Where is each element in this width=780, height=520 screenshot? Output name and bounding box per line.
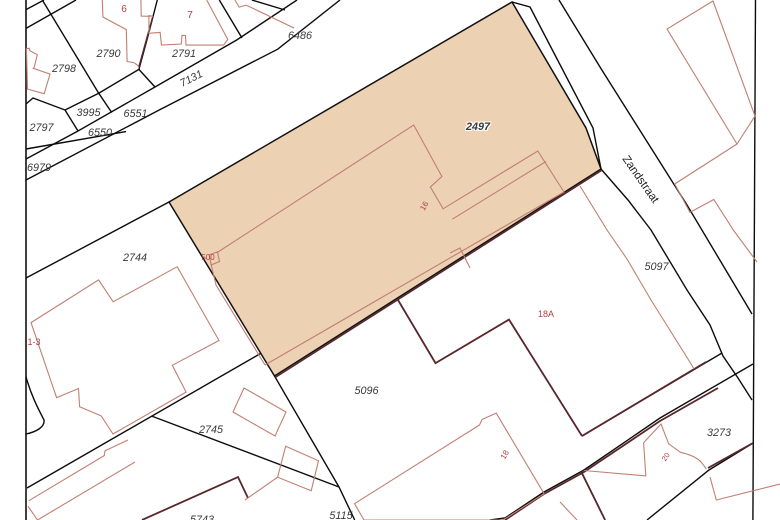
svg-text:3995: 3995 — [76, 107, 101, 119]
svg-text:3273: 3273 — [707, 427, 731, 439]
svg-text:5115: 5115 — [329, 510, 353, 520]
svg-text:1-3: 1-3 — [27, 337, 40, 347]
svg-text:18A: 18A — [538, 309, 554, 319]
svg-text:2798: 2798 — [51, 63, 76, 75]
svg-text:2497: 2497 — [465, 121, 491, 133]
svg-text:6550: 6550 — [88, 127, 112, 139]
svg-text:2790: 2790 — [95, 48, 120, 60]
svg-text:2791: 2791 — [171, 48, 196, 60]
svg-text:5743: 5743 — [190, 514, 214, 520]
svg-text:2745: 2745 — [198, 424, 224, 436]
svg-text:5096: 5096 — [354, 385, 378, 397]
svg-text:6486: 6486 — [288, 30, 312, 42]
svg-text:500: 500 — [201, 253, 215, 262]
svg-text:6979: 6979 — [27, 162, 51, 174]
svg-text:6551: 6551 — [123, 108, 147, 120]
svg-text:2744: 2744 — [122, 252, 147, 264]
svg-text:5097: 5097 — [644, 261, 669, 273]
svg-text:6: 6 — [121, 4, 127, 15]
svg-text:7: 7 — [187, 10, 193, 21]
svg-text:2797: 2797 — [28, 122, 54, 134]
